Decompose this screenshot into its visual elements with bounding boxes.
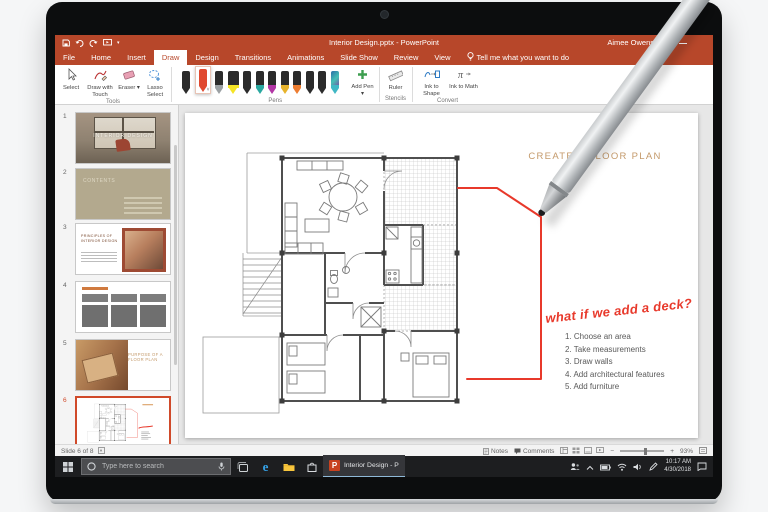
pen-black-4[interactable]: [318, 71, 326, 94]
slide-number: 3: [63, 224, 67, 231]
thumb5-photo: [76, 340, 128, 391]
tools-group: Select Draw with Touch Eraser ▾ Las: [55, 65, 171, 104]
stencils-group: Ruler Stencils: [380, 65, 412, 104]
eraser-button[interactable]: Eraser ▾: [117, 67, 141, 92]
slide-sorter-icon[interactable]: [572, 447, 580, 456]
powerpoint-titlebar: ▾ Interior Design.pptx - PowerPoint Aime…: [55, 35, 713, 50]
zoom-slider-thumb[interactable]: [644, 448, 647, 455]
highlighter-yellow[interactable]: [228, 71, 239, 94]
notes-button[interactable]: Notes: [483, 448, 508, 455]
lightbulb-icon: [467, 52, 474, 63]
windows-ink-pen-icon[interactable]: [649, 458, 658, 476]
step-item: 4. Add architectural features: [565, 369, 695, 382]
pen-galaxy[interactable]: [331, 71, 339, 94]
thumb5-title: PURPOSE OF A FLOOR PLAN: [128, 352, 166, 363]
ruler-button[interactable]: Ruler: [384, 67, 408, 92]
steps-list[interactable]: 1. Choose an area 2. Take measurements 3…: [565, 331, 695, 394]
pen-icon: [306, 71, 314, 88]
thumb1-title: INTERIOR DESIGN: [76, 133, 170, 139]
save-icon[interactable]: [62, 39, 70, 47]
ink-to-shape-icon: [424, 68, 440, 83]
pen-black-2[interactable]: [243, 71, 251, 94]
front-camera: [380, 10, 389, 19]
tablet-bottom-edge: [50, 499, 718, 504]
slide-number: 2: [63, 169, 67, 176]
task-view-button[interactable]: [231, 456, 254, 477]
powerpoint-icon: P: [329, 460, 340, 471]
tab-design[interactable]: Design: [187, 50, 226, 65]
add-pen-icon: [356, 68, 369, 83]
comments-button[interactable]: Comments: [514, 448, 554, 455]
language-icon[interactable]: [98, 447, 105, 456]
view-buttons: [560, 447, 604, 456]
step-item: 1. Choose an area: [565, 331, 695, 344]
normal-view-icon[interactable]: [560, 447, 568, 456]
windows-taskbar: e P Interior Design - P 10:17 AM 4: [55, 456, 713, 477]
tablet-bezel: ▾ Interior Design.pptx - PowerPoint Aime…: [46, 2, 722, 502]
ribbon-display-options-icon[interactable]: [662, 39, 671, 47]
ruler-icon: [388, 68, 403, 84]
slideshow-view-icon[interactable]: [596, 447, 604, 456]
highlighter-icon: [228, 71, 239, 88]
pen-icon: [243, 71, 251, 88]
slide-thumbnail-5[interactable]: PURPOSE OF A FLOOR PLAN: [75, 339, 171, 391]
start-button[interactable]: [55, 456, 81, 477]
ink-to-math-icon: π: [456, 68, 472, 83]
thumb6-mini-floorplan: [77, 398, 169, 444]
ink-to-math-button[interactable]: π Ink to Math: [449, 67, 479, 91]
slide-thumbnail-1[interactable]: INTERIOR DESIGN: [75, 112, 171, 164]
slide-thumbnail-2[interactable]: CONTENTS: [75, 168, 171, 220]
step-item: 5. Add furniture: [565, 381, 695, 394]
fit-to-window-icon[interactable]: [699, 447, 707, 456]
slide-canvas[interactable]: CREATE A FLOOR PLAN what if we add a dec…: [185, 113, 698, 438]
reading-view-icon[interactable]: [584, 447, 592, 456]
microsoft-store-icon[interactable]: [300, 456, 323, 477]
tab-view[interactable]: View: [426, 50, 458, 65]
eraser-icon: [122, 68, 136, 84]
pens-group: ˅: [172, 65, 379, 104]
pen-icon: [318, 71, 326, 88]
tab-review[interactable]: Review: [386, 50, 427, 65]
start-from-beginning-icon[interactable]: [103, 39, 112, 47]
draw-with-touch-icon: [93, 68, 108, 84]
slide-thumbnail-3[interactable]: PRINCIPLES OF INTERIOR DESIGN: [75, 223, 171, 275]
tab-file[interactable]: File: [55, 50, 83, 65]
quick-access-toolbar: ▾: [55, 39, 120, 47]
editing-workspace: 1 INTERIOR DESIGN 2 CONTENTS 3 PRINCIPLE…: [55, 105, 713, 444]
clock-time: 10:17 AM: [664, 459, 691, 467]
tell-me-label: Tell me what you want to do: [477, 53, 570, 62]
slide-thumbnail-6-selected[interactable]: [75, 396, 171, 444]
pen-icon: [281, 71, 289, 88]
microphone-icon[interactable]: [218, 458, 225, 476]
minimize-button[interactable]: [679, 39, 687, 47]
svg-text:π: π: [458, 70, 464, 81]
edge-browser-icon[interactable]: e: [254, 456, 277, 477]
tab-insert[interactable]: Insert: [119, 50, 154, 65]
convert-group: Ink to Shape π Ink to Math Convert: [413, 65, 483, 104]
pen-silver[interactable]: [215, 71, 223, 94]
zoom-level[interactable]: 93%: [680, 448, 693, 455]
pen-icon: [268, 71, 276, 88]
tablet-screen: ▾ Interior Design.pptx - PowerPoint Aime…: [55, 35, 713, 477]
people-icon[interactable]: [570, 458, 580, 476]
slide-thumbnail-panel[interactable]: 1 INTERIOR DESIGN 2 CONTENTS 3 PRINCIPLE…: [55, 105, 179, 444]
system-tray: 10:17 AM 4/30/2018: [570, 458, 713, 476]
customize-qat-icon[interactable]: ▾: [117, 40, 120, 46]
tab-slide-show[interactable]: Slide Show: [332, 50, 386, 65]
tab-animations[interactable]: Animations: [279, 50, 332, 65]
tab-transitions[interactable]: Transitions: [227, 50, 279, 65]
pen-black-3[interactable]: [306, 71, 314, 94]
stencils-group-label: Stencils: [385, 95, 406, 104]
step-item: 2. Take measurements: [565, 344, 695, 357]
undo-icon[interactable]: [75, 39, 84, 47]
tell-me-box[interactable]: Tell me what you want to do: [459, 50, 578, 65]
slide-number: 5: [63, 340, 67, 347]
pen-icon: [293, 71, 301, 88]
pen-icon: [256, 71, 264, 88]
pen-orange[interactable]: [293, 71, 301, 94]
pen-teal[interactable]: [256, 71, 264, 94]
search-input[interactable]: [100, 462, 204, 471]
ribbon-tab-row: File Home Insert Draw Design Transitions…: [55, 50, 713, 65]
step-item: 3. Draw walls: [565, 356, 695, 369]
zoom-out-button[interactable]: −: [610, 448, 614, 455]
pen-black-1[interactable]: [182, 71, 190, 94]
clock-date: 4/30/2018: [664, 467, 691, 475]
slide-title[interactable]: CREATE A FLOOR PLAN: [505, 151, 685, 162]
lasso-select-button[interactable]: Lasso Select: [143, 67, 167, 98]
taskbar-clock[interactable]: 10:17 AM 4/30/2018: [664, 459, 691, 474]
surface-tablet-scene: ▾ Interior Design.pptx - PowerPoint Aime…: [0, 0, 768, 512]
cursor-icon: [65, 68, 78, 84]
account-name[interactable]: Aimee Owens: [607, 38, 654, 47]
taskbar-search[interactable]: [81, 458, 231, 475]
pen-icon: [182, 71, 190, 88]
action-center-icon[interactable]: [697, 458, 707, 476]
slide-number: 6: [63, 397, 67, 404]
pen-magenta[interactable]: [268, 71, 276, 94]
pen-icon: [331, 71, 339, 88]
file-explorer-icon[interactable]: [277, 456, 300, 477]
tab-draw[interactable]: Draw: [154, 50, 188, 65]
network-wifi-icon[interactable]: [617, 458, 627, 476]
slide-thumbnail-4[interactable]: [75, 281, 171, 333]
ink-to-shape-button[interactable]: Ink to Shape: [417, 67, 447, 97]
slide-number: 1: [63, 113, 67, 120]
select-button[interactable]: Select: [59, 67, 83, 92]
pen-gallery: ˅: [176, 67, 345, 94]
powerpoint-taskbar-label: Interior Design - P: [344, 462, 399, 469]
thumbnail-scrollbar[interactable]: [174, 145, 177, 365]
tab-home[interactable]: Home: [83, 50, 119, 65]
windows-logo-icon: [63, 462, 73, 472]
show-hidden-icons-chevron[interactable]: [586, 458, 594, 476]
draw-ribbon: Select Draw with Touch Eraser ▾ Las: [55, 65, 713, 105]
battery-icon[interactable]: [600, 458, 611, 476]
volume-icon[interactable]: [633, 458, 643, 476]
zoom-slider[interactable]: [620, 450, 664, 452]
lasso-icon: [148, 68, 162, 84]
cortana-icon: [87, 458, 96, 476]
slide-number: 4: [63, 282, 67, 289]
thumb3-title: PRINCIPLES OF INTERIOR DESIGN: [81, 234, 119, 244]
redo-icon[interactable]: [89, 39, 98, 47]
pen-icon: [199, 69, 207, 86]
draw-with-touch-button[interactable]: Draw with Touch: [85, 67, 115, 98]
slide-counter: Slide 6 of 8: [61, 448, 94, 455]
pen-dropdown-icon[interactable]: ˅: [207, 87, 210, 93]
pen-icon: [215, 71, 223, 88]
pen-red-selected[interactable]: ˅: [195, 66, 211, 94]
thumb3-photo: [122, 228, 166, 272]
pen-gold[interactable]: [281, 71, 289, 94]
thumb2-title: CONTENTS: [83, 178, 115, 184]
zoom-in-button[interactable]: +: [670, 448, 674, 455]
add-pen-button[interactable]: Add Pen ▾: [351, 67, 375, 97]
powerpoint-taskbar-button[interactable]: P Interior Design - P: [323, 455, 405, 477]
